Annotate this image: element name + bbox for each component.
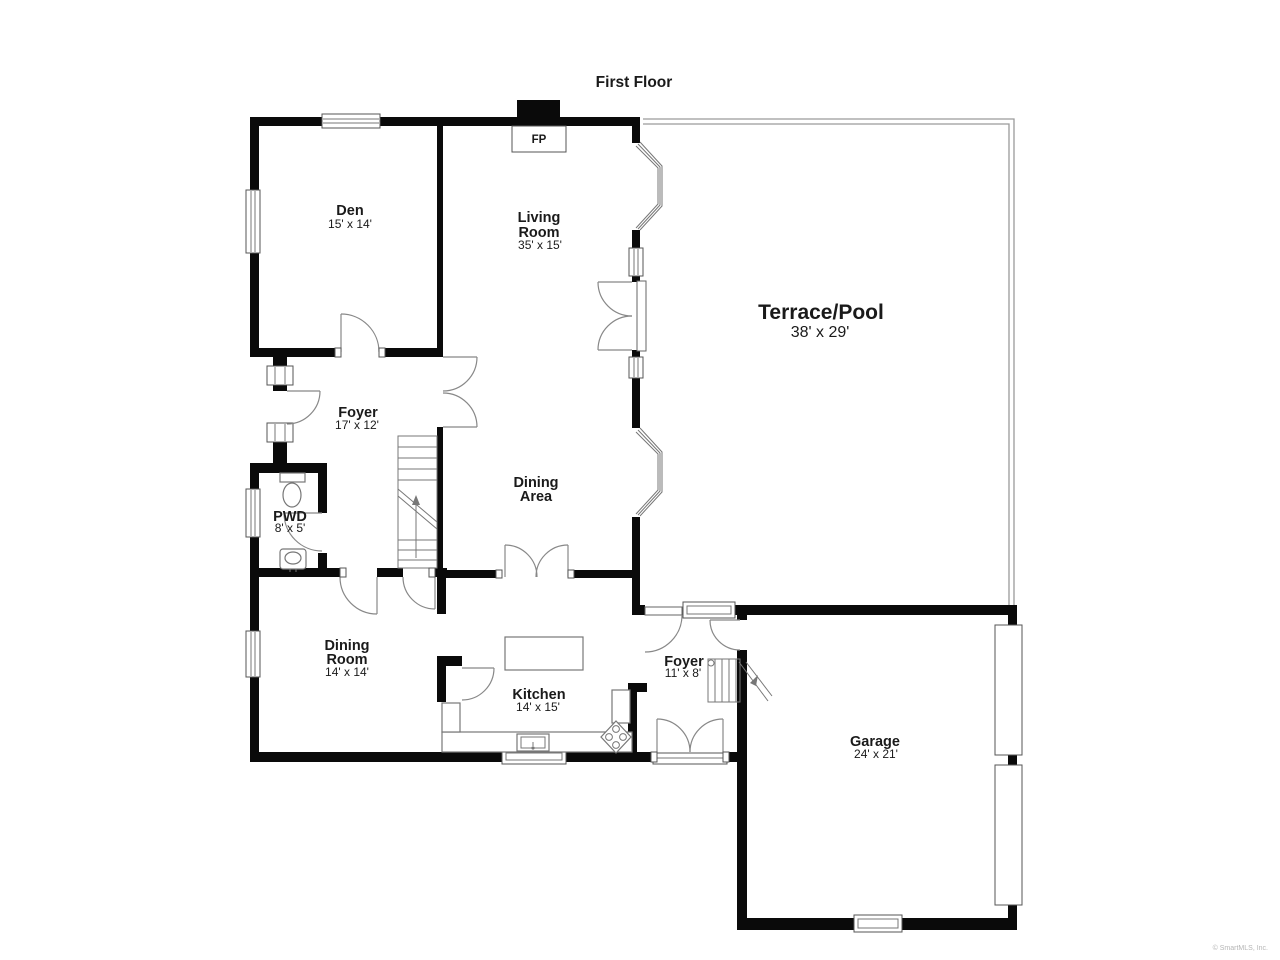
svg-text:38' x 29': 38' x 29' bbox=[791, 324, 850, 341]
svg-text:14' x 14': 14' x 14' bbox=[325, 665, 369, 679]
garage-door-lower bbox=[995, 765, 1022, 905]
bay-window-lower bbox=[636, 428, 662, 516]
svg-text:8' x 5': 8' x 5' bbox=[275, 521, 306, 535]
stairs-main bbox=[398, 436, 437, 568]
door-living-room-terrace-french bbox=[598, 281, 646, 351]
room-label-foyer-rear: Foyer 11' x 8' bbox=[664, 654, 704, 680]
page-title: First Floor bbox=[596, 74, 673, 91]
garage-door-upper bbox=[995, 625, 1022, 755]
window-den-left bbox=[246, 190, 260, 253]
svg-text:35' x 15': 35' x 15' bbox=[518, 238, 562, 252]
svg-text:17' x 12': 17' x 12' bbox=[335, 418, 379, 432]
door-rear-foyer-terrace bbox=[645, 607, 682, 652]
fireplace-label: FP bbox=[532, 134, 547, 146]
door-back-double bbox=[653, 719, 727, 764]
kitchen-sink bbox=[517, 734, 549, 751]
terrace-outline bbox=[643, 119, 1014, 605]
svg-text:11' x 8': 11' x 8' bbox=[665, 666, 701, 680]
room-label-dining-area: Dining Area bbox=[513, 475, 558, 505]
room-label-foyer-main: Foyer 17' x 12' bbox=[335, 405, 379, 432]
window-living-room-right-lower bbox=[629, 357, 643, 378]
room-label-living-room: Living Room 35' x 15' bbox=[518, 210, 562, 252]
svg-text:Terrace/Pool: Terrace/Pool bbox=[758, 301, 884, 324]
room-label-garage: Garage 24' x 21' bbox=[850, 734, 900, 761]
floor-plan-canvas: First Floor FP Den 15' x 14' Living Room… bbox=[0, 0, 1280, 960]
door-kitchen bbox=[462, 668, 494, 700]
window-dining-room-left bbox=[246, 631, 260, 677]
svg-text:Living: Living bbox=[518, 210, 561, 226]
svg-text:Area: Area bbox=[520, 489, 553, 505]
room-label-kitchen: Kitchen 14' x 15' bbox=[512, 687, 565, 714]
kitchen-island bbox=[505, 637, 583, 670]
door-den bbox=[341, 314, 379, 352]
door-dining-room-left bbox=[340, 577, 377, 614]
bay-window-upper bbox=[636, 142, 662, 230]
svg-text:14' x 15': 14' x 15' bbox=[516, 700, 560, 714]
window-rear-foyer-top bbox=[683, 602, 735, 618]
room-label-terrace-pool: Terrace/Pool 38' x 29' bbox=[758, 301, 884, 341]
pwd-toilet bbox=[280, 473, 305, 507]
door-dining-area-double bbox=[505, 545, 568, 577]
door-dining-room-right bbox=[403, 577, 435, 609]
window-foyer-left-lower bbox=[267, 423, 293, 442]
stairs-up-arrow bbox=[412, 495, 420, 505]
pwd-sink bbox=[280, 549, 306, 572]
floor-plan-page: First Floor FP Den 15' x 14' Living Room… bbox=[0, 0, 1280, 960]
door-garage-entry bbox=[710, 620, 740, 650]
watermark: © SmartMLS, Inc. bbox=[1213, 944, 1268, 952]
window-pwd-left bbox=[246, 489, 260, 537]
door-foyer-french-doors bbox=[443, 357, 477, 427]
door-front-entry bbox=[287, 391, 320, 424]
stairs-rear-foyer bbox=[708, 659, 772, 702]
window-living-room-right-upper bbox=[629, 248, 643, 276]
stairs-rear-arrow bbox=[750, 675, 758, 686]
room-label-dining-room: Dining Room 14' x 14' bbox=[324, 638, 369, 679]
window-foyer-left-upper bbox=[267, 366, 293, 385]
svg-text:24' x 21': 24' x 21' bbox=[854, 747, 898, 761]
room-label-den: Den 15' x 14' bbox=[328, 203, 372, 231]
window-den-top bbox=[322, 114, 380, 128]
room-label-pwd: PWD 8' x 5' bbox=[273, 509, 307, 535]
svg-text:15' x 14': 15' x 14' bbox=[328, 217, 372, 231]
labels: First Floor FP Den 15' x 14' Living Room… bbox=[273, 74, 1268, 952]
window-garage-bottom bbox=[854, 915, 902, 932]
